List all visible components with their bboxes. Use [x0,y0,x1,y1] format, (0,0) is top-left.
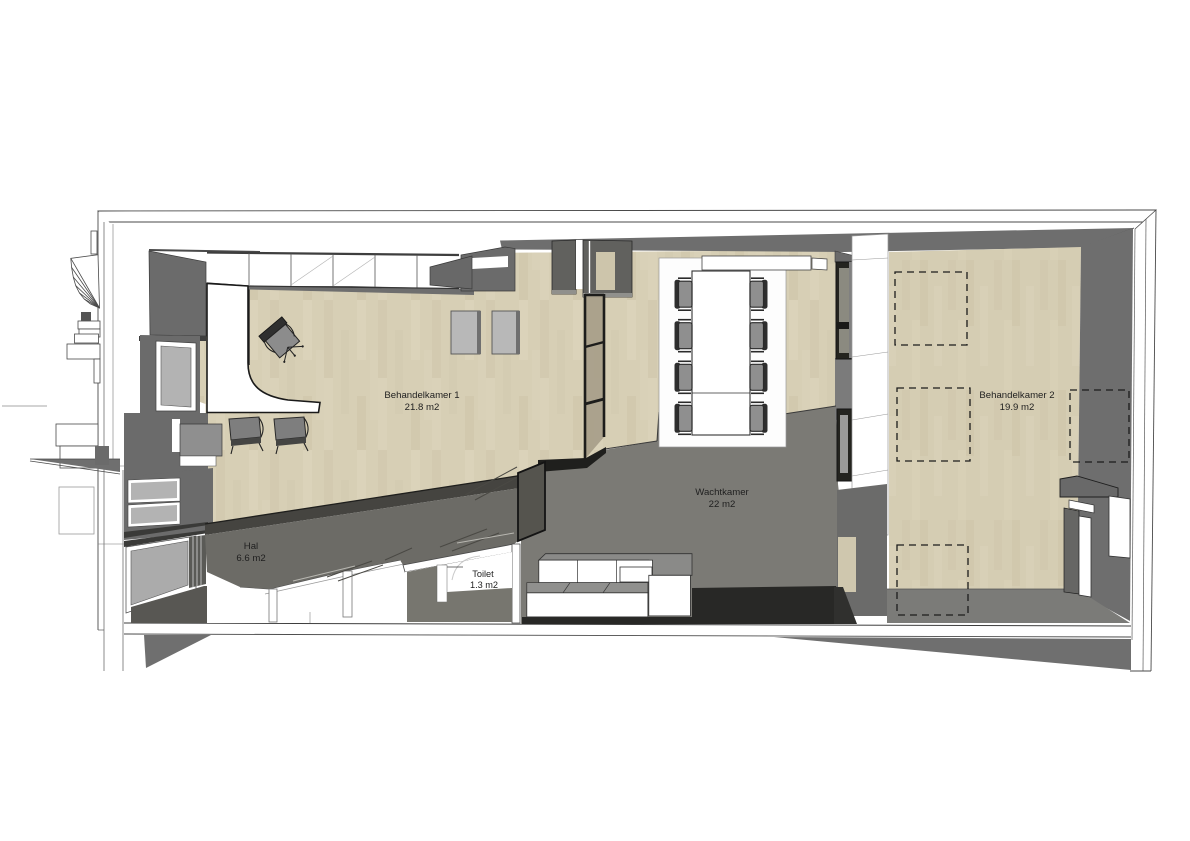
svg-text:21.8 m2: 21.8 m2 [405,402,440,413]
svg-text:1.3 m2: 1.3 m2 [470,580,498,590]
svg-text:Hal: Hal [244,541,258,552]
svg-text:Behandelkamer 2: Behandelkamer 2 [979,390,1054,401]
svg-text:19.9 m2: 19.9 m2 [1000,402,1035,413]
svg-text:Toilet: Toilet [472,569,494,579]
svg-text:6.6 m2: 6.6 m2 [236,553,265,564]
svg-text:Behandelkamer 1: Behandelkamer 1 [384,390,459,401]
svg-text:22 m2: 22 m2 [709,499,736,510]
svg-text:Wachtkamer: Wachtkamer [695,487,749,498]
